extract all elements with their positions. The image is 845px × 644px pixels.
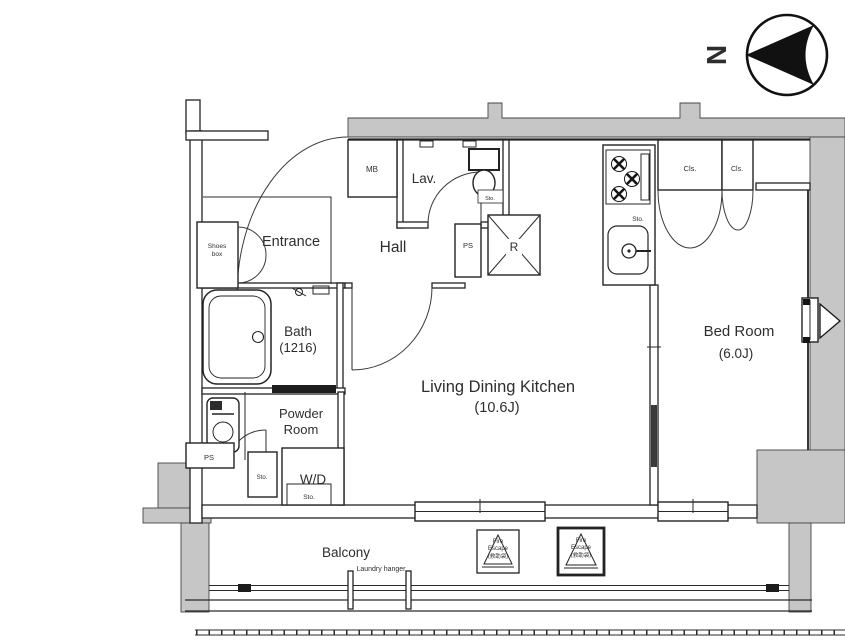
fire-escape-label: Fire: [576, 538, 587, 544]
balcony-right-column: [789, 523, 811, 612]
entry-top-wall: [186, 131, 268, 140]
right-wall: [810, 137, 845, 455]
lav-left-wall: [397, 140, 403, 228]
toilet-tank: [469, 149, 499, 170]
pipe-space-upper-box: [455, 224, 481, 277]
fire-escape-label: (救助袋): [571, 551, 591, 559]
bedroom-size-label: (6.0J): [719, 346, 754, 361]
kitchen-counter: [603, 145, 655, 285]
hall-label: Hall: [380, 239, 407, 256]
entrance-area: [197, 140, 397, 288]
bedroom-label: Bed Room: [704, 323, 775, 340]
washer-dryer-label: W/D: [300, 472, 326, 487]
floor-plan-page: Fire Escape (救助袋) Fire Escape (救助袋) N En…: [0, 0, 845, 644]
bath-folding-door: [272, 385, 336, 393]
fire-escape-label: Escape: [571, 545, 592, 551]
left-pier-a: [158, 463, 192, 508]
bath-size-label: (1216): [279, 340, 317, 355]
closet-right-box: [722, 140, 753, 190]
powder-room-label: Powder: [279, 406, 324, 421]
ldk-size-label: (10.6J): [474, 400, 519, 416]
fire-escape-hatch-left: Fire Escape (救助袋): [477, 530, 519, 573]
fire-escape-label: Escape: [488, 546, 509, 552]
right-lower-wall: [757, 450, 845, 523]
tub-faucet: [253, 332, 264, 343]
railing-joint-right: [766, 584, 779, 592]
lav-area: [420, 141, 540, 277]
meter-box-label: MB: [366, 165, 378, 174]
balcony-label: Balcony: [322, 545, 370, 560]
fire-escape-hatch-right: Fire Escape (救助袋): [558, 528, 604, 575]
balcony-left-column: [181, 523, 209, 612]
balcony-railing: [185, 584, 845, 635]
laundry-post-left: [348, 571, 353, 609]
storage-kitchen-label: Sto.: [632, 216, 644, 223]
ldk-bedroom-partition: [650, 285, 658, 505]
lav-bottom-wall-left: [397, 222, 428, 228]
bedroom-top-wall: [756, 183, 810, 190]
fire-escape-label: Fire: [493, 539, 504, 545]
shoes-box-label: Shoes: [208, 243, 227, 250]
hall-door-arc: [352, 287, 432, 370]
laundry-post-right: [406, 571, 411, 609]
closet-left-label: Cls.: [684, 164, 697, 173]
entrance-label: Entrance: [262, 234, 320, 250]
closet-right-label: Cls.: [731, 166, 743, 173]
storage-powder-label: Sto.: [257, 475, 268, 481]
lav-label: Lav.: [412, 171, 437, 186]
hall-wall-right: [432, 283, 465, 288]
ldk-label: Living Dining Kitchen: [421, 378, 575, 396]
left-wall-stub-top: [186, 100, 200, 133]
top-wall: [348, 103, 845, 137]
bath-right-wall: [337, 283, 343, 393]
powder-room-label: Room: [284, 422, 319, 437]
storage-lav-label: Sto.: [485, 196, 495, 202]
hall-wall-left: [345, 283, 352, 288]
refrigerator-label: R: [510, 240, 519, 254]
shoes-box-label: box: [212, 251, 223, 258]
fire-escape-label: (救助袋): [488, 552, 508, 560]
compass: N: [701, 15, 827, 95]
pipe-space-upper-label: PS: [463, 241, 473, 250]
storage-wd-label: Sto.: [303, 494, 315, 501]
bath-label: Bath: [284, 324, 312, 339]
railing-joint-left: [238, 584, 251, 592]
laundry-hanger-label: Laundry hanger: [356, 566, 406, 573]
closets: [658, 140, 753, 248]
compass-north-label: N: [701, 45, 732, 65]
floor-plan-drawing: Fire Escape (救助袋) Fire Escape (救助袋) N En…: [0, 0, 845, 644]
partition-sliding-door: [651, 405, 657, 467]
pipe-space-lower-label: PS: [204, 453, 214, 462]
